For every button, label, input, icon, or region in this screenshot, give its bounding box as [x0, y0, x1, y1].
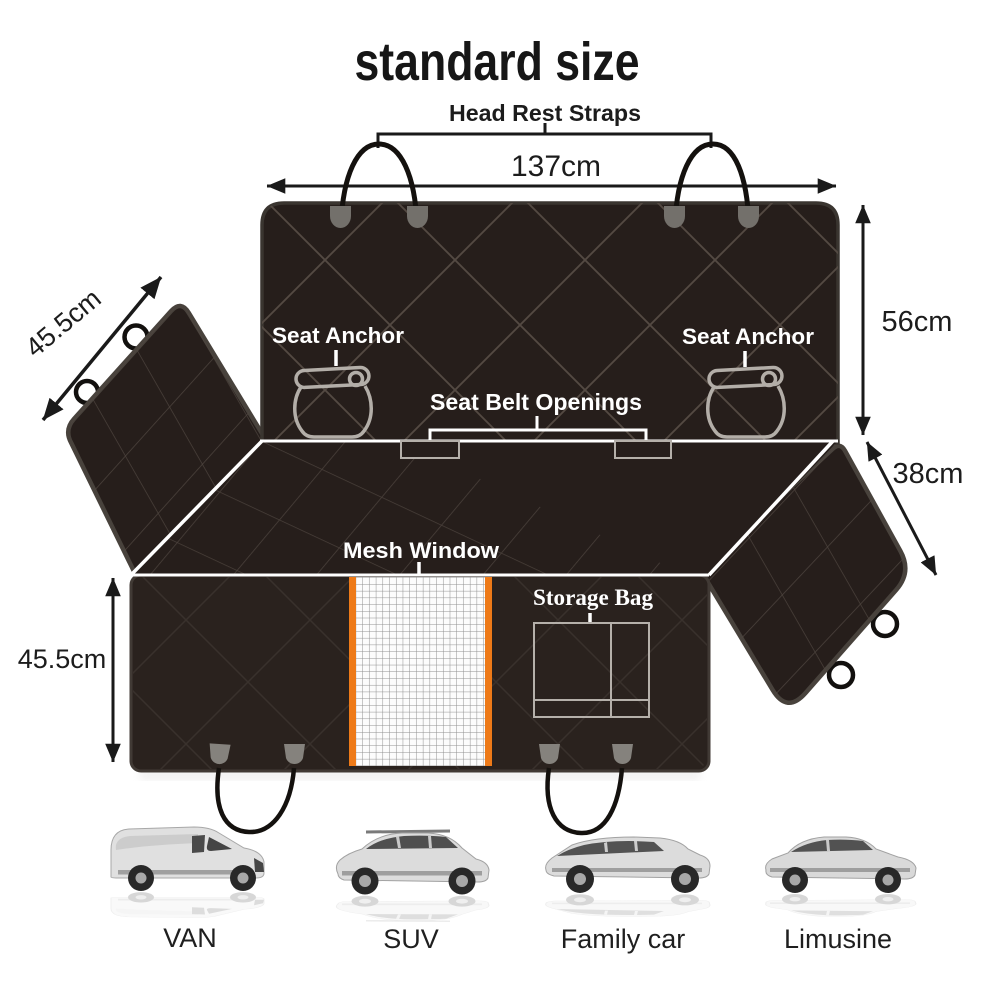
- svg-text:Storage Bag: Storage Bag: [533, 585, 653, 610]
- svg-text:Mesh Window: Mesh Window: [343, 538, 500, 563]
- svg-text:VAN: VAN: [163, 923, 217, 953]
- svg-text:Limusine: Limusine: [784, 924, 892, 954]
- svg-text:SUV: SUV: [383, 924, 439, 954]
- svg-text:Seat Anchor: Seat Anchor: [682, 324, 814, 349]
- svg-text:45.5cm: 45.5cm: [20, 283, 107, 363]
- svg-text:38cm: 38cm: [893, 458, 964, 490]
- svg-text:standard size: standard size: [355, 32, 640, 92]
- svg-text:Family car: Family car: [561, 924, 686, 954]
- svg-text:Seat Anchor: Seat Anchor: [272, 323, 404, 348]
- svg-text:45.5cm: 45.5cm: [18, 644, 107, 674]
- svg-text:56cm: 56cm: [882, 306, 953, 338]
- svg-text:Seat Belt Openings: Seat Belt Openings: [430, 389, 642, 415]
- svg-text:137cm: 137cm: [511, 150, 601, 183]
- svg-text:Head Rest Straps: Head Rest Straps: [449, 100, 641, 126]
